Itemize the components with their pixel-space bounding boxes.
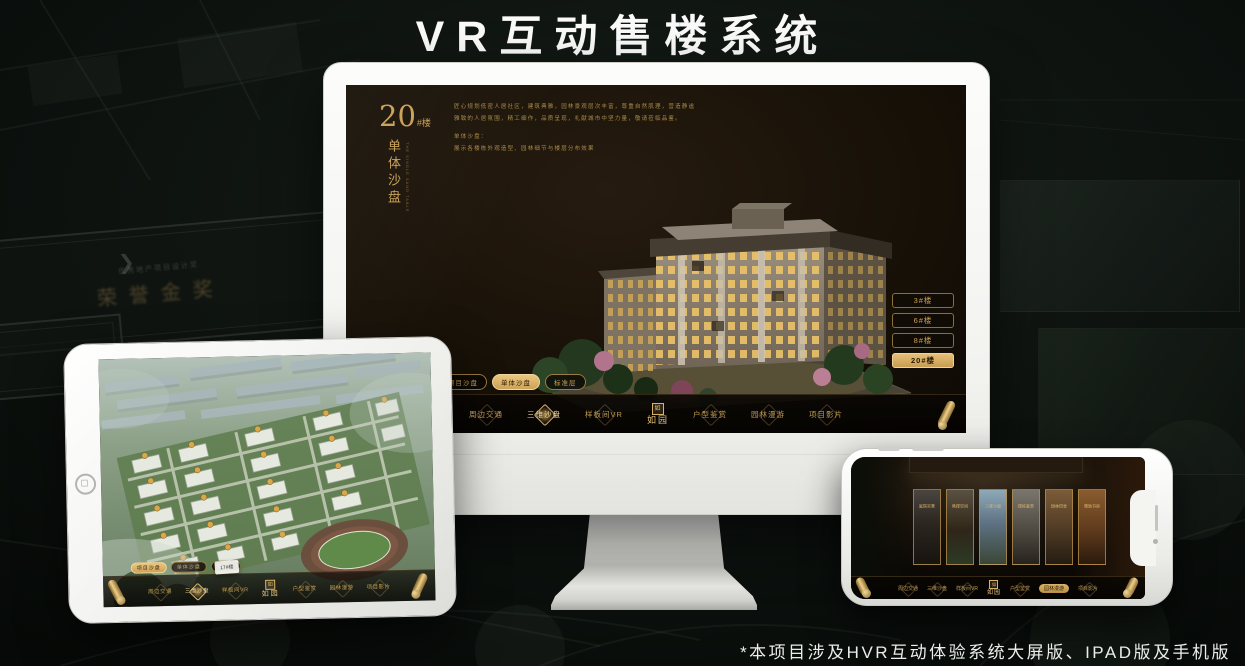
nav-item-traffic[interactable]: 周边交通	[469, 409, 503, 420]
nav-item-label: 样板间VR	[222, 585, 249, 594]
nav-item-project-video[interactable]: 项目影片	[809, 409, 843, 420]
floor-button-3[interactable]: 3#楼	[892, 293, 954, 308]
nav-item-label: 三维沙盘	[927, 585, 947, 592]
description-line: 匠心规划低密人居社区，建筑典雅，园林景观层次丰富，尊重自然肌理，营造静谧	[454, 101, 764, 113]
ipad-bezel: 项目沙盘 单体沙盘 标准层 17#楼 周边交通 三维沙盘 样板间VR 如如园 户…	[63, 336, 457, 624]
gallery-card[interactable]: 楼栋鉴赏	[1012, 489, 1040, 565]
seal-icon: 如	[989, 580, 998, 589]
chevron-right-icon	[117, 250, 135, 276]
seal-icon: 如	[265, 580, 275, 590]
footnote: *本项目涉及HVR互动体验系统大屏版、IPAD版及手机版	[0, 638, 1231, 663]
card-label: 三维沙盘	[983, 504, 1004, 510]
gallery-card[interactable]: 园林四季	[1045, 489, 1073, 565]
page-title: VR互动售楼系统	[0, 2, 1245, 64]
gallery-card[interactable]: 雅致书房	[1078, 489, 1106, 565]
nav-item-label: 户型鉴赏	[693, 409, 727, 420]
nav-item-label: 周边交通	[469, 409, 503, 420]
sandbox-tabs: 项目沙盘 单体沙盘 标准层	[439, 374, 586, 390]
nav-item-label: 周边交通	[898, 585, 918, 592]
gallery-card[interactable]: 售楼空间	[946, 489, 974, 565]
nav-item-garden-tour[interactable]: 园林漫游	[330, 583, 354, 592]
building-description: 匠心规划低密人居社区，建筑典雅，园林景观层次丰富，尊重自然肌理，营造静谧 雅致的…	[454, 101, 764, 155]
gallery-card[interactable]: 庭院实景	[913, 489, 941, 565]
brand-logo: 如如园	[647, 403, 669, 426]
nav-item-3d-sandbox[interactable]: 三维沙盘	[527, 409, 561, 420]
nav-item-label: 项目影片	[367, 582, 391, 591]
nav-item-label: 三维沙盘	[185, 586, 209, 595]
building-unit: #楼	[417, 118, 431, 128]
card-label: 雅致书房	[1082, 504, 1103, 510]
tab-project-sandbox[interactable]: 项目沙盘	[131, 562, 167, 574]
camera-icon	[1153, 539, 1158, 544]
ipad-device: 项目沙盘 单体沙盘 标准层 17#楼 周边交通 三维沙盘 样板间VR 如如园 户…	[63, 336, 457, 624]
scroll-icon[interactable]	[1127, 577, 1136, 596]
heading-vertical: 单体沙盘	[383, 139, 402, 207]
scroll-icon[interactable]	[858, 577, 867, 596]
nav-item-showroom-vr[interactable]: 样板间VR	[585, 409, 623, 420]
nav-item-showroom-vr[interactable]: 样板间VR	[222, 585, 249, 594]
volume-button[interactable]	[912, 446, 944, 451]
nav-item-3d-sandbox[interactable]: 三维沙盘	[927, 585, 947, 592]
tab-single-sandbox[interactable]: 单体沙盘	[171, 561, 207, 573]
ipad-screen: 项目沙盘 单体沙盘 标准层 17#楼 周边交通 三维沙盘 样板间VR 如如园 户…	[98, 352, 435, 607]
brand-logo-text: 如园	[262, 591, 280, 598]
phone-bezel: 庭院实景 售楼空间 三维沙盘 楼栋鉴赏 园林四季 雅致书房 周边交通 三维沙盘 …	[841, 448, 1173, 606]
heading-vertical-en: THE SINGLE SAND TABLE	[405, 142, 410, 212]
description-line: 单体沙盘：	[454, 131, 764, 143]
nav-item-label: 园林漫游	[1044, 585, 1064, 592]
nav-item-traffic[interactable]: 周边交通	[898, 585, 918, 592]
brand-logo: 如如园	[987, 580, 1001, 596]
nav-item-showroom-vr[interactable]: 样板间VR	[956, 585, 978, 592]
phone-navbar: 周边交通 三维沙盘 样板间VR 如如园 户型鉴赏 园林漫游 项目影片	[851, 576, 1145, 599]
floor-button-20[interactable]: 20#楼	[892, 353, 954, 368]
phone-screen: 庭院实景 售楼空间 三维沙盘 楼栋鉴赏 园林四季 雅致书房 周边交通 三维沙盘 …	[851, 457, 1145, 599]
floor-button-8[interactable]: 8#楼	[892, 333, 954, 348]
nav-item-label: 园林漫游	[330, 583, 354, 592]
nav-item-floorplan[interactable]: 户型鉴赏	[293, 584, 317, 593]
scroll-icon[interactable]	[942, 400, 954, 428]
nav-item-label: 项目影片	[1078, 585, 1098, 592]
card-label: 庭院实景	[917, 504, 938, 510]
floor-button-group: 3#楼 6#楼 8#楼 20#楼	[892, 293, 954, 368]
card-label: 园林四季	[1049, 504, 1070, 510]
tab-standard-floor[interactable]: 标准层	[545, 374, 586, 390]
gallery-cards: 庭院实景 售楼空间 三维沙盘 楼栋鉴赏 园林四季 雅致书房	[913, 489, 1106, 565]
speaker-icon	[1155, 505, 1158, 531]
nav-item-floorplan[interactable]: 户型鉴赏	[1010, 585, 1030, 592]
nav-item-floorplan[interactable]: 户型鉴赏	[693, 409, 727, 420]
floor-button-6[interactable]: 6#楼	[892, 313, 954, 328]
nav-item-label: 园林漫游	[751, 409, 785, 420]
building-tooltip: 17#楼	[214, 560, 239, 575]
brand-logo-text: 如园	[647, 417, 669, 426]
scroll-icon[interactable]	[111, 579, 122, 603]
brand-logo-text: 如园	[987, 590, 1001, 596]
card-label: 楼栋鉴赏	[1016, 504, 1037, 510]
nav-item-project-video[interactable]: 项目影片	[1078, 585, 1098, 592]
building-number: 20	[379, 99, 416, 133]
background-photo	[1000, 180, 1240, 312]
gallery-card[interactable]: 三维沙盘	[979, 489, 1007, 565]
building-heading: 20#楼	[379, 99, 431, 133]
tab-single-sandbox[interactable]: 单体沙盘	[492, 374, 540, 390]
nav-item-3d-sandbox[interactable]: 三维沙盘	[185, 586, 209, 595]
volume-button[interactable]	[878, 446, 900, 451]
nav-item-project-video[interactable]: 项目影片	[367, 582, 391, 591]
poster-stage: 优秀地产项目设计奖 荣誉金奖 VR互动售楼系统 20#楼 单体沙盘 THE SI…	[0, 0, 1245, 666]
phone-notch	[1130, 490, 1156, 566]
description-line: 雅致的人居氛围，精工细作，品质呈现，礼献城市中坚力量，敬请莅临品鉴。	[454, 113, 764, 125]
nav-item-label: 户型鉴赏	[1010, 585, 1030, 592]
nav-item-label: 项目影片	[809, 409, 843, 420]
scroll-icon[interactable]	[415, 573, 426, 597]
nav-item-traffic[interactable]: 周边交通	[148, 587, 172, 596]
card-label: 售楼空间	[950, 504, 971, 510]
nav-item-garden-tour[interactable]: 园林漫游	[751, 409, 785, 420]
nav-item-label: 样板间VR	[956, 585, 978, 592]
home-button-icon[interactable]	[75, 473, 96, 494]
ceiling-light	[909, 457, 1083, 473]
nav-item-label: 周边交通	[148, 587, 172, 596]
phone-device: 庭院实景 售楼空间 三维沙盘 楼栋鉴赏 园林四季 雅致书房 周边交通 三维沙盘 …	[841, 448, 1173, 606]
brand-logo: 如如园	[261, 580, 279, 598]
seal-icon: 如	[652, 403, 664, 415]
nav-item-label: 户型鉴赏	[293, 584, 317, 593]
monitor-stand	[551, 511, 757, 610]
nav-item-garden-tour[interactable]: 园林漫游	[1039, 584, 1069, 593]
nav-item-label: 样板间VR	[585, 409, 623, 420]
ipad-navbar: 周边交通 三维沙盘 样板间VR 如如园 户型鉴赏 园林漫游 项目影片	[103, 569, 436, 607]
nav-item-label: 三维沙盘	[527, 409, 561, 420]
